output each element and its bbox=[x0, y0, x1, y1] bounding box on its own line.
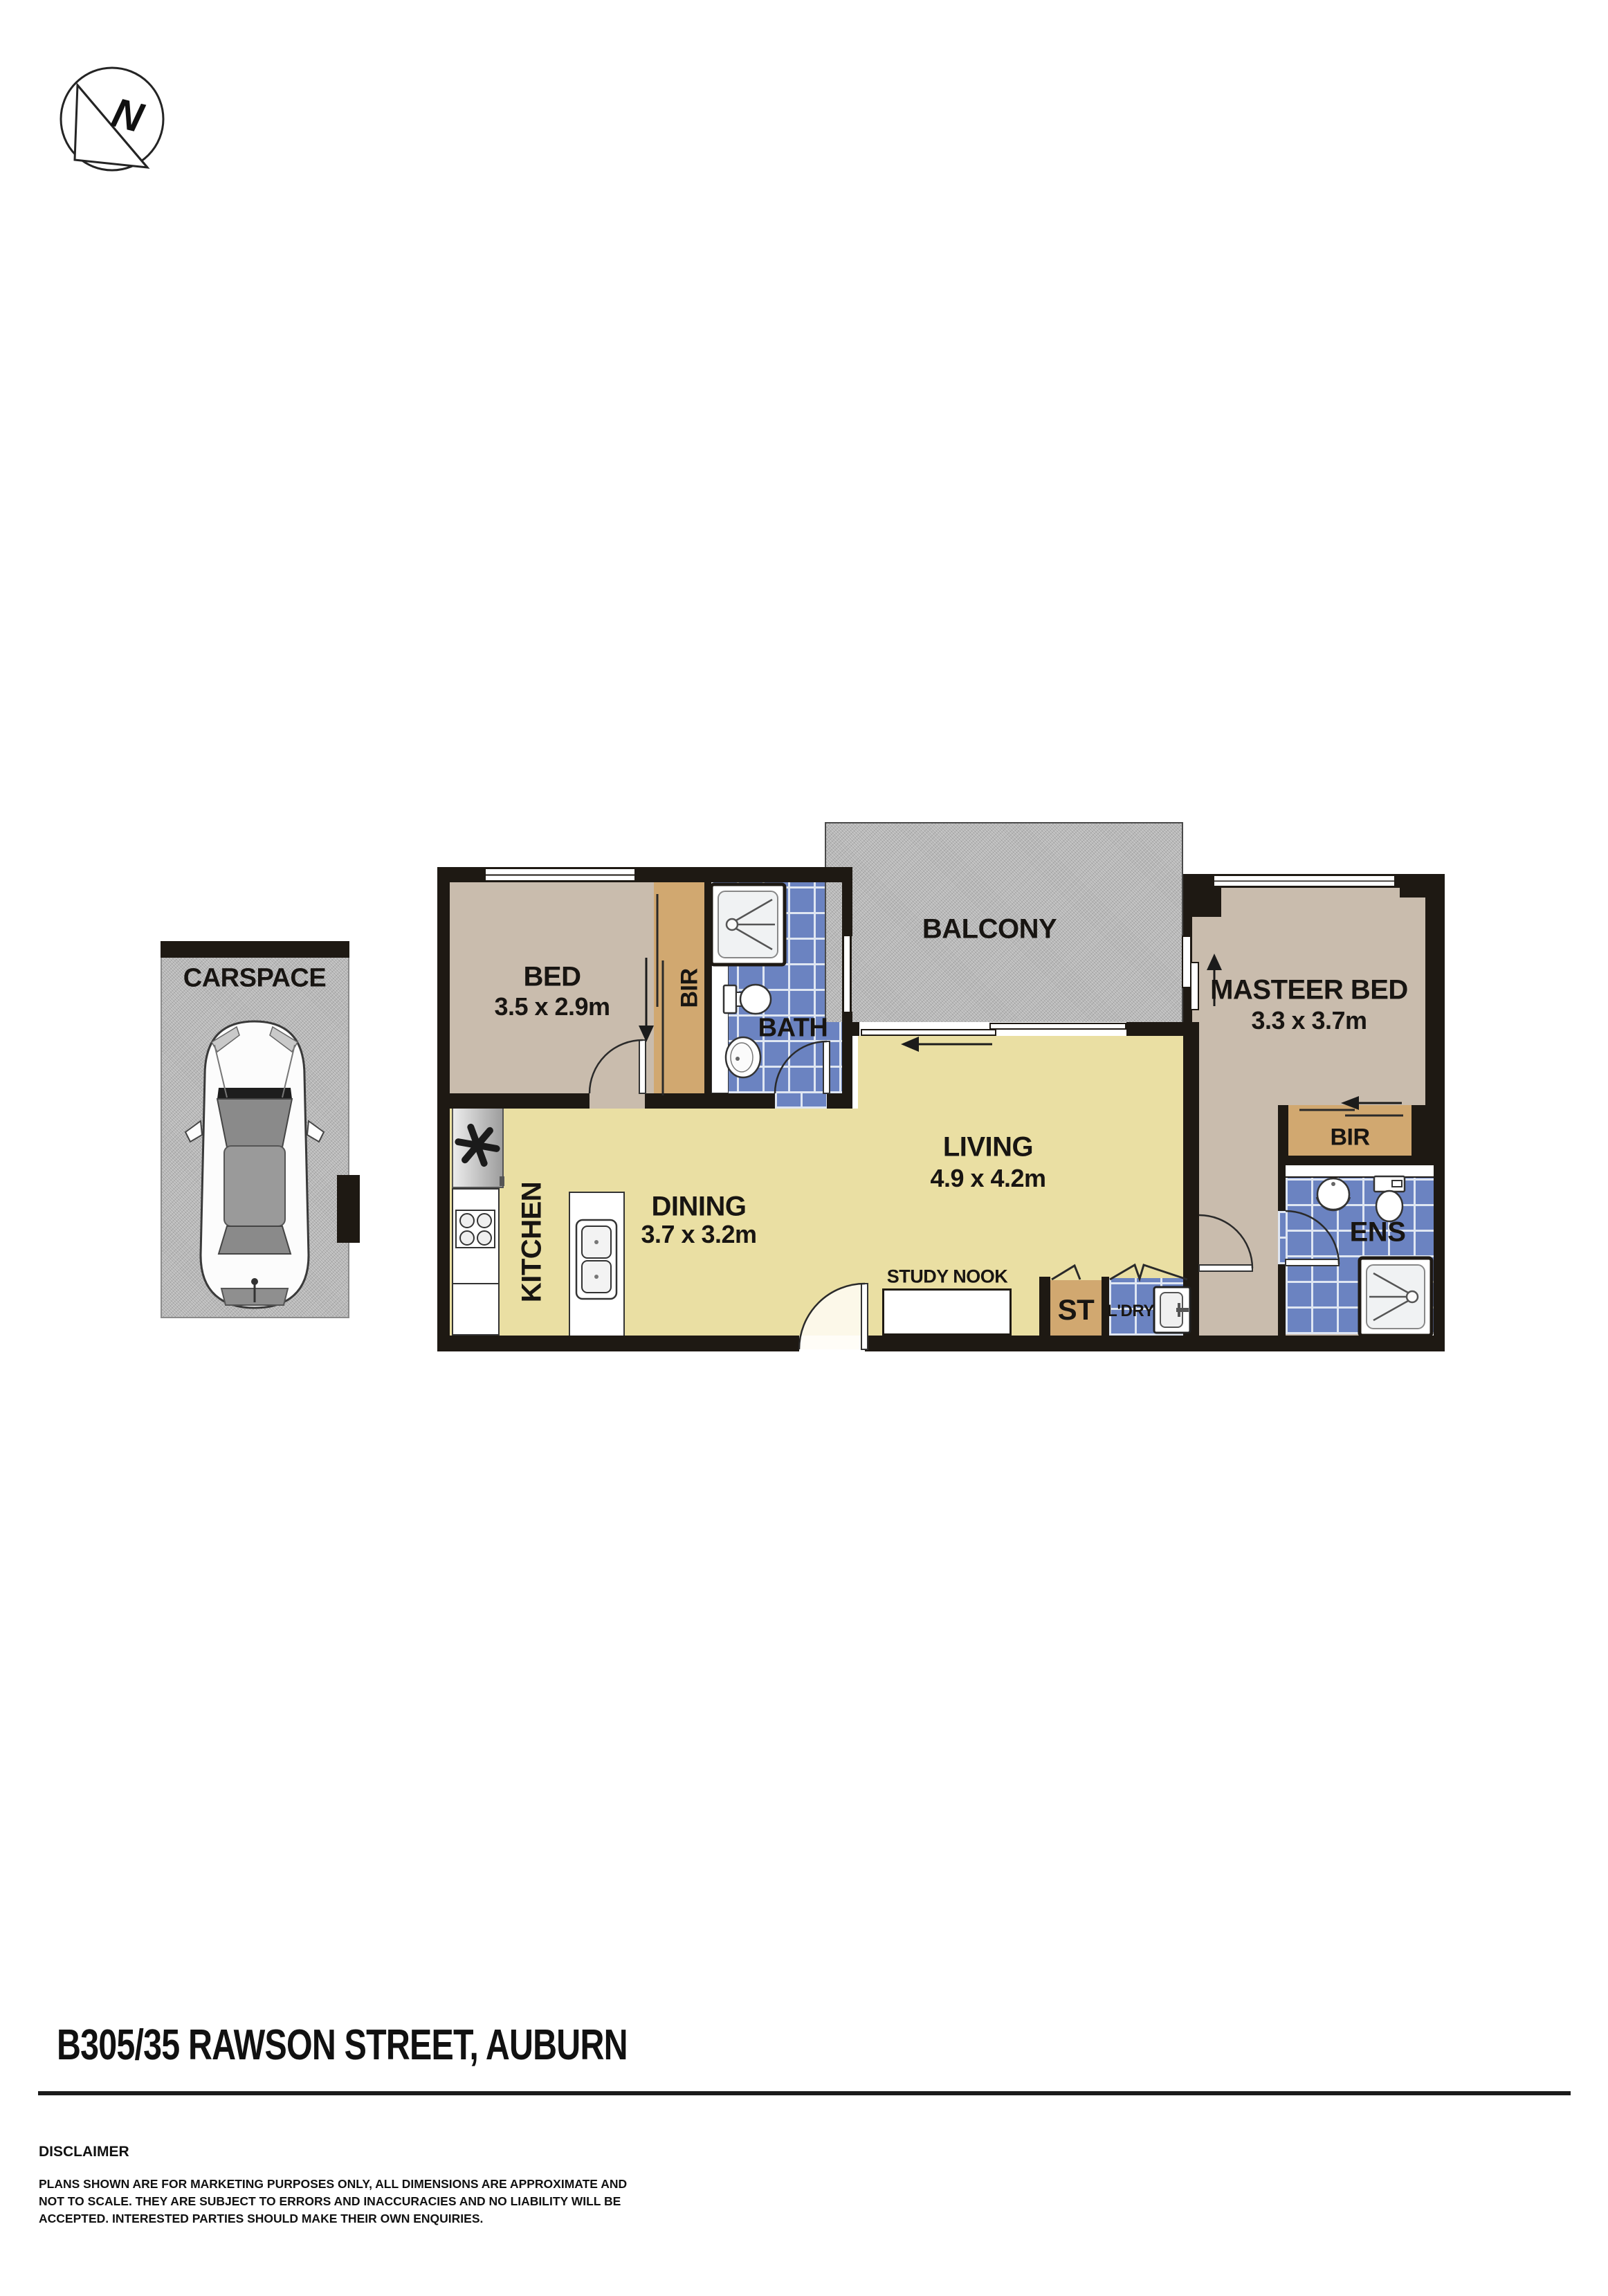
wall-master-ne-step bbox=[1400, 874, 1425, 898]
carspace-label: CARSPACE bbox=[183, 964, 326, 994]
carspace-area bbox=[161, 958, 349, 1318]
balcony-label: BALCONY bbox=[922, 914, 1057, 945]
svg-text:N: N bbox=[107, 89, 149, 142]
master-bed-label: MASTEER BED bbox=[1210, 975, 1408, 1006]
storage-label: ST bbox=[1058, 1293, 1095, 1327]
bath-vanity bbox=[711, 963, 729, 1093]
laundry-label: L'DRY bbox=[1107, 1302, 1154, 1321]
living-dims: 4.9 x 4.2m bbox=[930, 1164, 1045, 1193]
carspace-side-block bbox=[337, 1175, 360, 1243]
north-compass-icon: N bbox=[61, 68, 163, 170]
wall-left-outer bbox=[437, 867, 450, 1351]
dining-label: DINING bbox=[652, 1192, 747, 1223]
kitchen-label: KITCHEN bbox=[517, 1182, 548, 1302]
master-balcony-door-panel-b bbox=[1190, 962, 1199, 1010]
wall-bath-right-upper bbox=[842, 881, 852, 936]
bath-area bbox=[711, 881, 842, 1093]
kitchen-island bbox=[569, 1192, 625, 1337]
study-nook-label: STUDY NOOK bbox=[887, 1266, 1008, 1288]
fridge-icon bbox=[452, 1102, 504, 1188]
master-window bbox=[1214, 874, 1394, 888]
study-nook-desk bbox=[882, 1288, 1012, 1336]
disclaimer-line-3: ACCEPTED. INTERESTED PARTIES SHOULD MAKE… bbox=[39, 2212, 483, 2226]
balcony-sliding-door-panel-right bbox=[989, 1023, 1126, 1030]
wall-under-bir bbox=[1278, 1156, 1434, 1164]
title-underline bbox=[38, 2091, 1571, 2095]
wall-balcony-door-right-stub bbox=[1126, 1022, 1199, 1036]
living-label: LIVING bbox=[943, 1132, 1033, 1163]
dining-dims: 3.7 x 3.2m bbox=[641, 1220, 756, 1249]
disclaimer-heading: DISCLAIMER bbox=[39, 2144, 129, 2160]
master-bir-label: BIR bbox=[1330, 1124, 1369, 1151]
bath-doorway bbox=[775, 1093, 827, 1109]
bed-doorway bbox=[590, 1093, 645, 1109]
wall-ens-right bbox=[1434, 1164, 1445, 1336]
wall-bath-bottom-right bbox=[827, 1093, 852, 1109]
bed-room-label: BED bbox=[524, 962, 581, 993]
bed-bir-label: BIR bbox=[677, 968, 704, 1008]
disclaimer-line-1: PLANS SHOWN ARE FOR MARKETING PURPOSES O… bbox=[39, 2177, 627, 2192]
wall-bed-bottom-left bbox=[450, 1093, 590, 1109]
bed-window bbox=[486, 867, 634, 882]
wall-storage-left bbox=[1039, 1277, 1050, 1336]
balcony-sliding-door-panel-left bbox=[861, 1029, 996, 1036]
bath-window bbox=[842, 936, 852, 1012]
wall-bath-bottom-left bbox=[711, 1093, 775, 1109]
wall-bottom-outer bbox=[437, 1336, 1445, 1351]
kitchen-counter bbox=[452, 1188, 500, 1336]
master-bed-dims: 3.3 x 3.7m bbox=[1251, 1006, 1367, 1035]
bed-room-dims: 3.5 x 2.9m bbox=[494, 992, 610, 1021]
address-title: B305/35 RAWSON STREET, AUBURN bbox=[57, 2021, 628, 2070]
carspace-top-wall bbox=[161, 941, 349, 958]
wall-right-outer bbox=[1425, 874, 1445, 1178]
ens-area bbox=[1286, 1178, 1434, 1334]
wall-balcony-door-left-stub bbox=[852, 1022, 859, 1036]
wall-ens-left-upper bbox=[1278, 1164, 1286, 1211]
ens-window bbox=[1286, 1164, 1434, 1178]
bath-label: BATH bbox=[758, 1014, 828, 1044]
wall-living-master-divider bbox=[1183, 1036, 1199, 1336]
wall-bath-right-lower bbox=[842, 1012, 852, 1093]
ens-label: ENS bbox=[1350, 1217, 1406, 1248]
entry-doorway bbox=[799, 1336, 865, 1351]
floorplan-page: CARSPACE bbox=[0, 0, 1608, 2296]
living-under-balcony-area bbox=[858, 1036, 1183, 1110]
wall-bed-bottom-right bbox=[645, 1093, 711, 1109]
ens-doorway bbox=[1278, 1211, 1286, 1264]
wall-ens-left-lower bbox=[1278, 1264, 1286, 1336]
wall-bir-bath-divider bbox=[704, 881, 711, 1093]
disclaimer-line-2: NOT TO SCALE. THEY ARE SUBJECT TO ERRORS… bbox=[39, 2194, 621, 2209]
